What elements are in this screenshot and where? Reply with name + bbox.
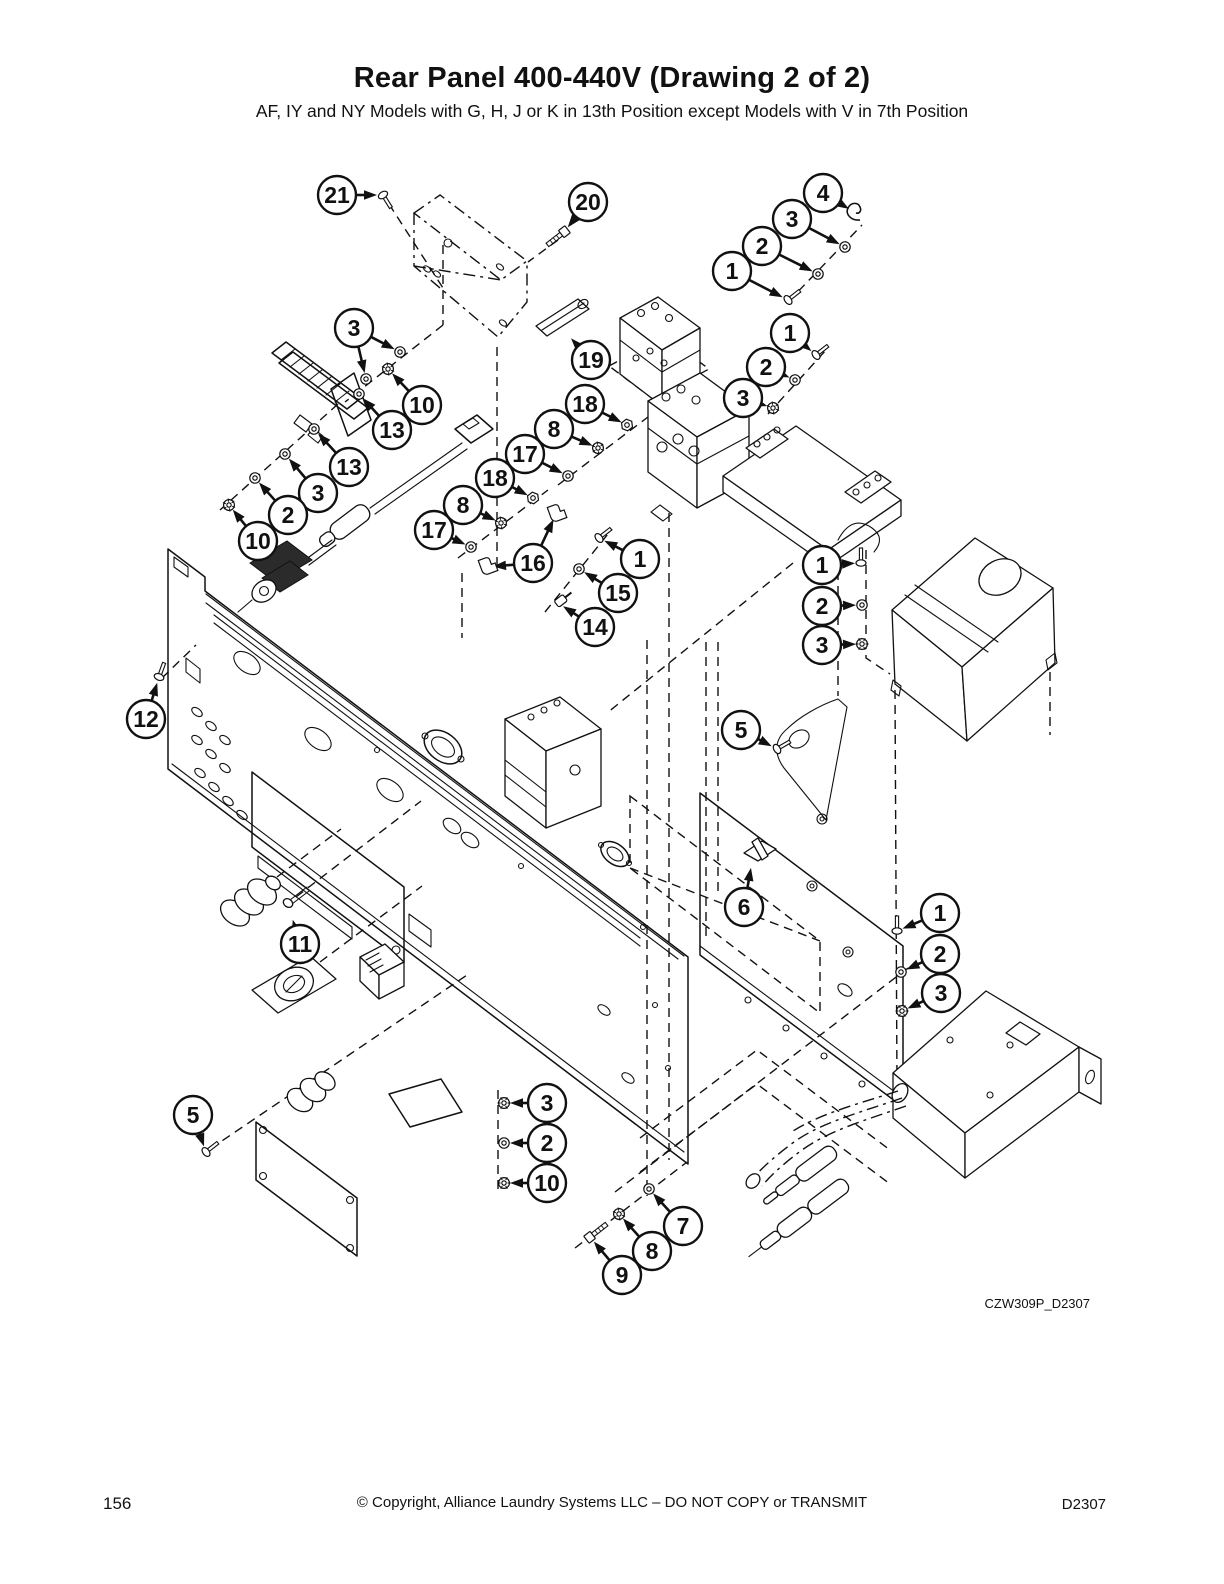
callout-number: 5 xyxy=(735,717,748,743)
callout-3: 3 xyxy=(895,974,960,1017)
callout-1: 1 xyxy=(892,894,959,934)
callout-number: 5 xyxy=(187,1102,200,1128)
bus-link xyxy=(536,297,590,336)
figure-code: CZW309P_D2307 xyxy=(985,1296,1091,1311)
page-footer: 156 © Copyright, Alliance Laundry System… xyxy=(0,1494,1224,1511)
rear-panel xyxy=(168,549,688,1164)
part-glyph-lockwasher xyxy=(220,496,237,513)
callout-16: 16 xyxy=(478,502,567,582)
callout-1: 1 xyxy=(803,546,866,584)
callout-number: 2 xyxy=(934,941,947,967)
callout-3: 3 xyxy=(803,626,869,664)
callout-number: 4 xyxy=(817,180,830,206)
callout-number: 2 xyxy=(760,354,773,380)
part-glyph-nut xyxy=(619,417,635,432)
panel-screw-11 xyxy=(282,887,309,909)
part-glyph-washer xyxy=(857,600,867,610)
callout-number: 3 xyxy=(348,315,361,341)
callout-number: 18 xyxy=(482,465,508,491)
callout-10: 10 xyxy=(220,496,277,560)
part-glyph-elbow xyxy=(547,502,567,522)
callout-number: 3 xyxy=(312,480,325,506)
callout-3: 3 xyxy=(335,309,407,386)
rocker-switch xyxy=(360,944,404,999)
doc-code: D2307 xyxy=(1062,1496,1106,1513)
mounting-bracket-hidden xyxy=(414,195,527,337)
callout-number: 1 xyxy=(726,258,739,284)
callout-number: 1 xyxy=(934,900,947,926)
side-subpanel xyxy=(700,793,903,1107)
callout-number: 2 xyxy=(541,1130,554,1156)
callout-number: 13 xyxy=(336,454,362,480)
callout-number: 7 xyxy=(677,1213,690,1239)
harness-connectors xyxy=(744,1143,851,1263)
callout-18: 18 xyxy=(566,385,635,433)
callout-number: 6 xyxy=(738,894,751,920)
callout-2: 2 xyxy=(499,1124,566,1162)
callout-number: 2 xyxy=(756,233,769,259)
part-glyph-lockwasher xyxy=(497,1177,510,1188)
callout-9: 9 xyxy=(584,1221,641,1294)
part-glyph-washer xyxy=(393,345,408,360)
part-glyph-screw xyxy=(593,525,613,544)
callout-number: 19 xyxy=(578,347,604,373)
callout-number: 17 xyxy=(512,441,538,467)
callout-2: 2 xyxy=(747,348,802,387)
callout-20: 20 xyxy=(545,183,607,248)
callout-number: 10 xyxy=(534,1170,560,1196)
part-glyph-washer xyxy=(278,447,293,462)
callout-number: 1 xyxy=(816,552,829,578)
callout-number: 1 xyxy=(784,320,797,346)
callout-number: 1 xyxy=(634,546,647,572)
cover-plate xyxy=(256,1122,357,1256)
capacitor-box xyxy=(891,538,1057,741)
part-glyph-washer xyxy=(464,540,479,555)
callout-number: 3 xyxy=(737,385,750,411)
label-plate xyxy=(389,1079,462,1127)
callout-number: 14 xyxy=(582,614,608,640)
callout-number: 8 xyxy=(548,416,561,442)
part-glyph-screw xyxy=(772,737,793,755)
callout-number: 2 xyxy=(282,502,295,528)
callout-number: 10 xyxy=(245,528,271,554)
part-glyph-washer xyxy=(896,967,906,977)
part-glyph-nut xyxy=(525,490,541,505)
copyright-text: © Copyright, Alliance Laundry Systems LL… xyxy=(0,1494,1224,1511)
callout-6: 6 xyxy=(725,868,763,926)
cord-grip-2 xyxy=(283,1068,339,1116)
callout-19: 19 xyxy=(571,338,610,379)
part-glyph-lockwasher xyxy=(895,1005,908,1016)
cable-clip-6 xyxy=(744,838,776,861)
callout-21: 21 xyxy=(318,176,395,214)
callout-number: 8 xyxy=(646,1238,659,1264)
callout-2: 2 xyxy=(896,935,959,977)
callout-12: 12 xyxy=(127,661,169,738)
callout-number: 3 xyxy=(816,632,829,658)
part-glyph-lockwasher xyxy=(589,439,606,456)
manual-page: Rear Panel 400-440V (Drawing 2 of 2) AF,… xyxy=(0,0,1224,1584)
exploded-parts-diagram: 2120432131013133210191881718817161151412… xyxy=(0,0,1224,1584)
part-glyph-clamp xyxy=(847,203,860,220)
cord-grip xyxy=(216,873,283,931)
callout-number: 17 xyxy=(421,517,447,543)
part-glyph-washer xyxy=(359,372,374,387)
part-glyph-screw xyxy=(856,548,866,566)
part-glyph-washer xyxy=(838,240,853,255)
part-glyph-screw xyxy=(892,916,902,934)
panel-mounted-contactor xyxy=(505,697,601,828)
callout-number: 11 xyxy=(288,931,313,957)
part-glyph-screw xyxy=(377,190,395,211)
part-glyph-lug xyxy=(554,589,574,607)
callout-5: 5 xyxy=(174,1096,221,1158)
callout-2: 2 xyxy=(803,587,867,625)
part-glyph-washer xyxy=(811,267,826,282)
part-glyph-lockwasher xyxy=(492,514,509,531)
callout-number: 21 xyxy=(324,182,350,208)
callout-number: 8 xyxy=(457,492,470,518)
callout-5: 5 xyxy=(722,711,792,755)
callout-number: 12 xyxy=(133,706,159,732)
callout-number: 3 xyxy=(541,1090,554,1116)
round-receptacle xyxy=(252,956,336,1013)
callout-10: 10 xyxy=(497,1164,566,1202)
callout-number: 2 xyxy=(816,593,829,619)
callout-number: 18 xyxy=(572,391,598,417)
part-glyph-bolt xyxy=(584,1221,610,1244)
callout-number: 9 xyxy=(616,1262,629,1288)
callout-number: 20 xyxy=(575,189,601,215)
hinge-bracket xyxy=(777,699,847,824)
power-supply xyxy=(743,991,1101,1191)
callout-13: 13 xyxy=(352,387,411,449)
part-glyph-bolt xyxy=(545,226,571,249)
part-glyph-washer xyxy=(788,373,803,388)
part-glyph-washer xyxy=(499,1138,509,1148)
part-glyph-screw xyxy=(153,661,169,682)
callout-number: 3 xyxy=(935,980,948,1006)
callout-1: 1 xyxy=(593,525,659,578)
part-glyph-screw xyxy=(810,342,830,361)
callout-number: 3 xyxy=(786,206,799,232)
callout-number: 13 xyxy=(379,417,405,443)
page-number: 156 xyxy=(103,1494,131,1514)
callout-3: 3 xyxy=(497,1084,566,1122)
transformer xyxy=(723,426,901,566)
part-glyph-elbow xyxy=(478,555,498,575)
callout-number: 10 xyxy=(409,392,435,418)
callout-number: 15 xyxy=(605,580,631,606)
callout-11: 11 xyxy=(281,920,319,963)
callout-4: 4 xyxy=(804,174,861,220)
part-glyph-lockwasher xyxy=(497,1097,510,1108)
callout-number: 16 xyxy=(520,550,546,576)
